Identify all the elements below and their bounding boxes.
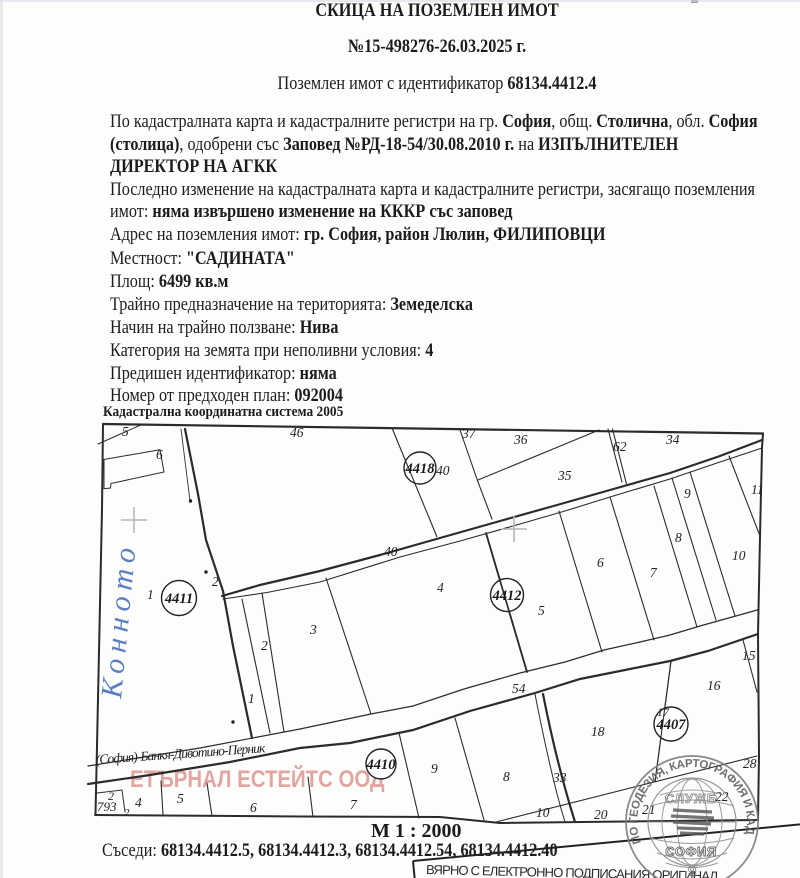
svg-text:37: 37 — [461, 426, 477, 441]
svg-text:2: 2 — [261, 638, 268, 653]
svg-text:15: 15 — [742, 648, 756, 663]
svg-text:9: 9 — [688, 863, 696, 878]
svg-text:40: 40 — [436, 463, 450, 478]
svg-text:4418: 4418 — [405, 461, 436, 477]
svg-text:46: 46 — [290, 425, 304, 440]
svg-text:СОФИЯ: СОФИЯ — [665, 844, 716, 859]
svg-text:6: 6 — [597, 555, 604, 570]
svg-text:1: 1 — [248, 691, 255, 706]
svg-text:9: 9 — [684, 486, 691, 501]
svg-text:4411: 4411 — [164, 591, 193, 607]
svg-text:Конното: Конното — [95, 546, 142, 700]
svg-text:16: 16 — [707, 678, 721, 693]
svg-text:20: 20 — [594, 807, 608, 822]
svg-text:4407: 4407 — [656, 717, 687, 733]
svg-text:6: 6 — [250, 800, 257, 815]
svg-text:2: 2 — [124, 807, 130, 819]
svg-text:6: 6 — [156, 447, 163, 462]
svg-text:7: 7 — [350, 797, 358, 812]
svg-text:8: 8 — [675, 530, 682, 545]
svg-text:34: 34 — [665, 432, 680, 447]
svg-text:2: 2 — [212, 574, 219, 589]
svg-text:62: 62 — [613, 439, 627, 454]
svg-text:54: 54 — [512, 681, 526, 696]
svg-text:10: 10 — [536, 805, 550, 820]
svg-text:4412: 4412 — [492, 588, 522, 604]
svg-text:17: 17 — [657, 705, 670, 719]
svg-text:2: 2 — [108, 789, 114, 803]
svg-text:18: 18 — [591, 724, 605, 739]
svg-text:7: 7 — [650, 565, 658, 580]
svg-text:(София)-Банкя-Дивотино-Перник: (София)-Банкя-Дивотино-Перник — [95, 740, 266, 767]
svg-text:9: 9 — [431, 761, 438, 776]
svg-text:11: 11 — [751, 482, 764, 497]
svg-text:ПО ГЕОДЕЗИЯ, КАРТОГРАФИЯ И КАД: ПО ГЕОДЕЗИЯ, КАРТОГРАФИЯ И КАДАСТЪР — [0, 0, 756, 846]
svg-text:40: 40 — [384, 544, 398, 559]
svg-text:35: 35 — [557, 468, 572, 483]
svg-text:СЛУЖБ: СЛУЖБ — [665, 791, 717, 806]
svg-text:8: 8 — [503, 769, 510, 784]
svg-text:793: 793 — [97, 799, 117, 814]
svg-text:4: 4 — [437, 580, 444, 595]
svg-text:5: 5 — [538, 603, 545, 618]
svg-text:10: 10 — [732, 548, 746, 563]
svg-text:ВЯРНО С ЕЛЕКТРОННО ПОДПИСАНИЯ: ВЯРНО С ЕЛЕКТРОННО ПОДПИСАНИЯ ОРИГИНАЛ — [426, 862, 718, 878]
svg-text:28: 28 — [743, 756, 757, 771]
svg-text:5: 5 — [122, 424, 129, 439]
svg-text:5: 5 — [177, 791, 184, 806]
svg-text:4410: 4410 — [366, 757, 396, 773]
svg-text:36: 36 — [513, 432, 528, 447]
svg-text:4: 4 — [135, 795, 142, 810]
svg-text:33: 33 — [552, 770, 567, 785]
svg-text:1: 1 — [147, 587, 154, 602]
svg-text:3: 3 — [309, 622, 317, 637]
